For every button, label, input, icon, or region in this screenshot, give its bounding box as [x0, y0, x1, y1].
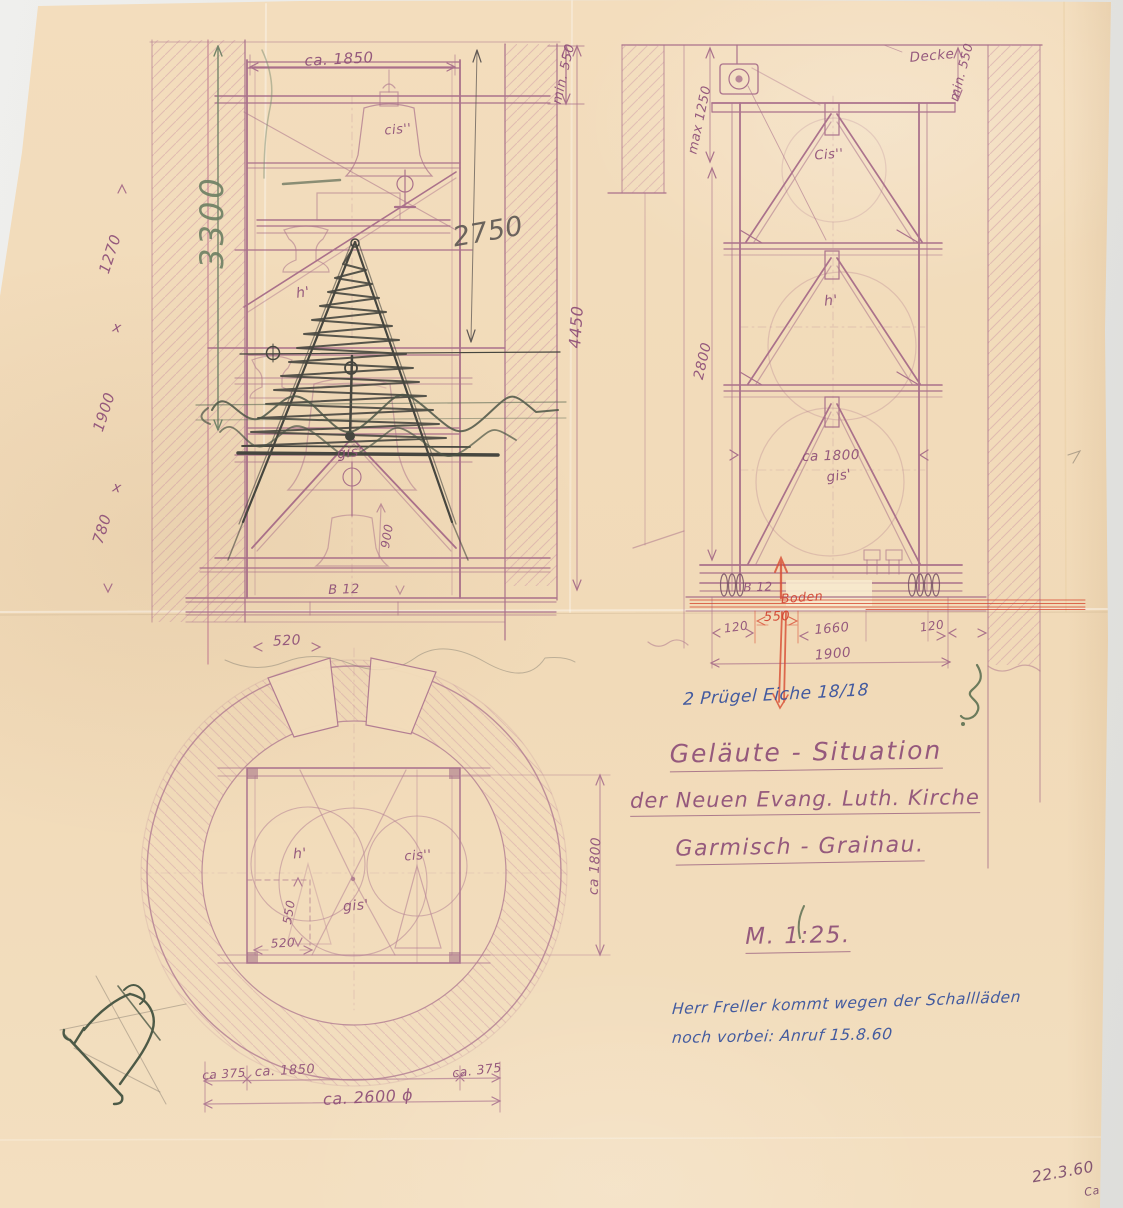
green-check-marks	[961, 665, 981, 726]
side-floor-label: Boden	[780, 588, 823, 606]
tracing-paper: ca. 1850 3300 2750 min. 550 4450 1270 x …	[0, 0, 1123, 1208]
plan-view-drawing	[141, 648, 610, 1112]
plan-bell-h: h'	[293, 846, 308, 863]
plan-dim-520: 520	[270, 935, 295, 950]
plan-bell-cis: cis''	[404, 848, 432, 865]
side-dim-total: 1900	[814, 644, 852, 663]
pencil-linework	[0, 0, 1123, 1208]
side-dim-bell-dia: ca 1800	[802, 447, 860, 465]
date-initials: Ca.	[1083, 1183, 1104, 1199]
green-bell-doodle	[60, 976, 186, 1104]
plan-dim-inner: ca 1800	[585, 837, 604, 896]
plan-dim-width: ca. 1850	[254, 1062, 315, 1080]
front-dim-width-top: ca. 1850	[304, 48, 374, 70]
title-line-1: Geläute - Situation	[669, 736, 942, 773]
plan-bell-gis: gis'	[342, 897, 369, 915]
title-line-2: der Neuen Evang. Luth. Kirche	[630, 785, 980, 817]
front-beam-label: B 12	[328, 582, 360, 598]
title-line-3: Garmisch - Grainau.	[675, 832, 925, 865]
side-bell-h: h'	[823, 292, 838, 309]
green-correction-slash	[788, 902, 818, 942]
front-dim-base-width: 520	[272, 632, 301, 649]
front-dim-total-height: 4450	[565, 305, 587, 349]
front-bell-cis: cis''	[384, 121, 412, 138]
side-dim-span: 1660	[814, 620, 850, 638]
side-beam-label: B 12	[743, 579, 773, 594]
front-dim-height-green: 3300	[193, 175, 231, 268]
side-dim-plinth: 550	[764, 609, 791, 625]
front-bell-h: h'	[295, 284, 311, 302]
scanned-drawing-sheet: ca. 1850 3300 2750 min. 550 4450 1270 x …	[0, 0, 1123, 1208]
side-bell-cis: Cis''	[814, 147, 844, 164]
front-bell-gis: gis'	[336, 444, 363, 463]
